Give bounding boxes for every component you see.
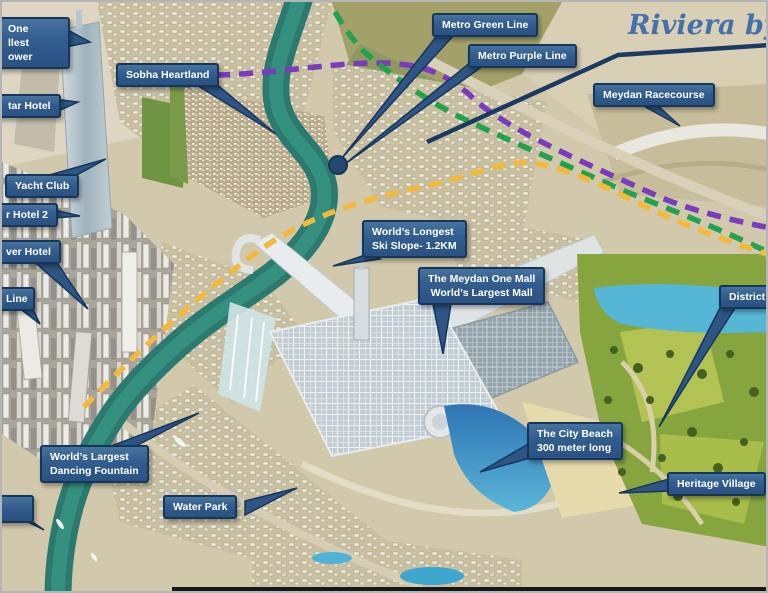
callout-heritage-village: Heritage Village — [667, 472, 766, 496]
callout-meydan-one-mall-line1: The Meydan One Mall — [428, 272, 535, 286]
callout-line-label: Line — [6, 293, 28, 305]
callout-river-hotel-label: ver Hotel — [6, 246, 51, 258]
callout-meydan-one-tower-line1: One — [8, 22, 60, 36]
callout-line: Line — [0, 287, 35, 311]
mall-tower — [354, 268, 369, 340]
callout-heritage-village-label: Heritage Village — [677, 478, 756, 490]
callout-metro-green-line: Metro Green Line — [432, 13, 538, 37]
callout-star-hotel: tar Hotel — [0, 94, 61, 118]
callout-water-park: Water Park — [163, 495, 237, 519]
callout-meydan-one-mall: The Meydan One Mall World’s Largest Mall — [418, 267, 545, 305]
callout-dancing-fountain-line2: Dancing Fountain — [50, 464, 139, 478]
callout-dancing-fountain-line1: World’s Largest — [50, 450, 139, 464]
round-pavilion-core — [432, 414, 448, 430]
riviera-watermark-text: Riviera by A — [628, 10, 768, 41]
tower-spire — [76, 10, 82, 28]
callout-metro-purple-line-label: Metro Purple Line — [478, 50, 567, 62]
annotated-masterplan-map: One llest ower tar Hotel Sobha Heartland… — [0, 0, 768, 593]
bottom-bar — [172, 587, 768, 593]
callout-sobha-heartland: Sobha Heartland — [116, 63, 219, 87]
water-park-pool-2 — [312, 552, 352, 564]
callout-water-park-label: Water Park — [173, 501, 227, 513]
metro-station-marker-icon — [329, 156, 347, 174]
callout-metro-purple-line: Metro Purple Line — [468, 44, 577, 68]
callout-sobha-heartland-label: Sobha Heartland — [126, 69, 209, 81]
riviera-watermark: Riviera by A — [628, 10, 768, 50]
callout-city-beach-line1: The City Beach — [537, 427, 613, 441]
callout-city-beach-line2: 300 meter long — [537, 441, 613, 455]
callout-ski-slope: World’s Longest Ski Slope- 1.2KM — [362, 220, 467, 258]
callout-city-beach: The City Beach 300 meter long — [527, 422, 623, 460]
callout-river-hotel: ver Hotel — [0, 240, 61, 264]
callout-dancing-fountain: World’s Largest Dancing Fountain — [40, 445, 149, 483]
callout-hotel-2-label: r Hotel 2 — [6, 209, 48, 221]
callout-meydan-racecourse: Meydan Racecourse — [593, 83, 715, 107]
callout-meydan-one-tower: One llest ower — [0, 17, 70, 69]
callout-meydan-one-tower-line2: llest — [8, 36, 60, 50]
callout-yacht-club: Yacht Club — [5, 174, 79, 198]
callout-cutoff-stub — [0, 495, 34, 523]
callout-district-one: District O — [719, 285, 768, 309]
water-park-pool — [400, 567, 464, 585]
callout-meydan-one-mall-line2: World’s Largest Mall — [428, 286, 535, 300]
callout-district-one-label: District O — [729, 291, 768, 303]
callout-meydan-one-tower-line3: ower — [8, 50, 60, 64]
callout-ski-slope-line2: Ski Slope- 1.2KM — [372, 239, 457, 253]
callout-metro-green-line-label: Metro Green Line — [442, 19, 528, 31]
callout-meydan-racecourse-label: Meydan Racecourse — [603, 89, 705, 101]
tower — [122, 252, 137, 352]
callout-yacht-club-label: Yacht Club — [15, 180, 69, 192]
callout-hotel-2: r Hotel 2 — [0, 203, 58, 227]
callout-star-hotel-label: tar Hotel — [8, 100, 51, 112]
callout-ski-slope-line1: World’s Longest — [372, 225, 457, 239]
